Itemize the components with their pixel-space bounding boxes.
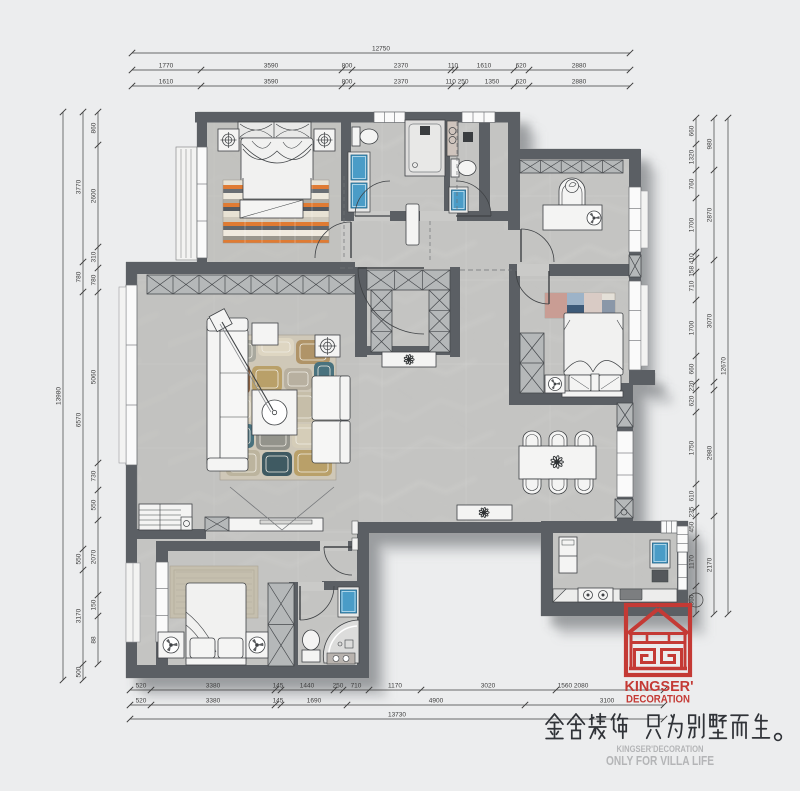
svg-text:5060: 5060 [91,369,98,384]
svg-text:2600: 2600 [91,188,98,203]
svg-text:1170: 1170 [388,683,402,690]
svg-text:3170: 3170 [76,608,83,623]
svg-text:550: 550 [76,553,83,564]
svg-text:610: 610 [689,490,696,501]
svg-text:1350: 1350 [485,79,500,86]
svg-text:980: 980 [707,138,714,149]
svg-text:550: 550 [91,499,98,510]
svg-text:520: 520 [136,683,147,690]
svg-text:1560 2080: 1560 2080 [558,683,589,690]
svg-text:860: 860 [91,122,98,133]
svg-text:6570: 6570 [76,412,83,427]
svg-text:2870: 2870 [707,207,714,222]
svg-text:780: 780 [91,274,98,285]
svg-text:110 250: 110 250 [445,79,468,86]
svg-text:13730: 13730 [388,712,406,719]
svg-text:235: 235 [689,506,696,517]
svg-text:730: 730 [91,470,98,481]
svg-text:2880: 2880 [572,79,587,86]
svg-text:3590: 3590 [264,79,279,86]
svg-text:710: 710 [351,683,362,690]
svg-text:DECORATION: DECORATION [626,694,690,706]
svg-text:3590: 3590 [264,63,279,70]
svg-text:310: 310 [91,251,98,262]
svg-text:3070: 3070 [707,313,714,328]
svg-text:2980: 2980 [707,445,714,460]
svg-text:150: 150 [91,599,98,610]
svg-text:110: 110 [448,63,459,70]
svg-text:2070: 2070 [91,549,98,564]
svg-text:1440: 1440 [300,683,315,690]
svg-text:3020: 3020 [481,683,496,690]
svg-text:13980: 13980 [56,387,63,405]
svg-text:1170: 1170 [689,555,696,569]
svg-text:620: 620 [516,79,527,86]
svg-text:3100: 3100 [600,698,615,705]
svg-text:620: 620 [516,63,527,70]
svg-text:1690: 1690 [307,698,322,705]
svg-text:1770: 1770 [159,63,174,70]
svg-text:12670: 12670 [721,357,728,375]
svg-text:620: 620 [689,395,696,406]
svg-text:2170: 2170 [707,557,714,572]
svg-text:3380: 3380 [206,683,221,690]
svg-text:4900: 4900 [429,698,444,705]
svg-text:250: 250 [333,683,344,690]
svg-text:3380: 3380 [206,698,221,705]
svg-text:145: 145 [273,698,284,705]
svg-text:710: 710 [689,280,696,291]
svg-text:1750: 1750 [689,440,696,455]
svg-text:520: 520 [136,698,147,705]
svg-text:220: 220 [689,380,696,391]
svg-text:450: 450 [689,521,696,532]
svg-text:1700: 1700 [689,320,696,335]
svg-text:158 410: 158 410 [689,253,696,277]
svg-text:780: 780 [76,271,83,282]
svg-text:KINGSER'DECORATION: KINGSER'DECORATION [617,744,704,754]
svg-text:2370: 2370 [394,79,409,86]
svg-text:760: 760 [689,178,696,189]
svg-text:660: 660 [689,363,696,374]
svg-text:800: 800 [342,79,353,86]
svg-text:500: 500 [76,666,83,677]
svg-text:12750: 12750 [372,46,390,53]
svg-text:800: 800 [342,63,353,70]
svg-text:1700: 1700 [689,217,696,232]
svg-text:1320: 1320 [689,149,696,164]
svg-text:1610: 1610 [477,63,492,70]
svg-text:1610: 1610 [159,79,174,86]
svg-text:2370: 2370 [394,63,409,70]
svg-text:145: 145 [273,683,284,690]
svg-text:2880: 2880 [572,63,587,70]
svg-text:ONLY FOR VILLA LIFE: ONLY FOR VILLA LIFE [606,754,714,768]
svg-text:3770: 3770 [76,179,83,194]
svg-text:660: 660 [689,125,696,136]
svg-text:88: 88 [91,636,98,644]
